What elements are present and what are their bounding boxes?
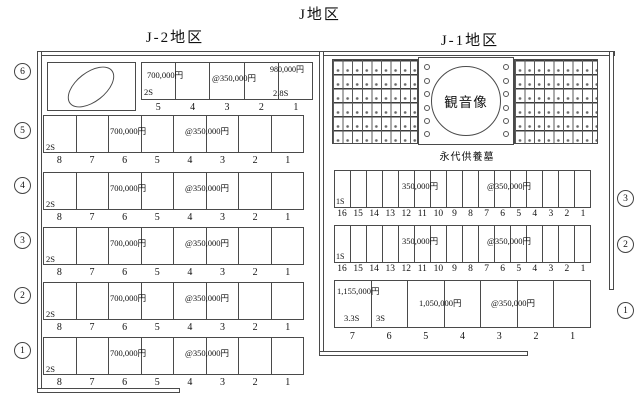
plot-cell — [446, 226, 462, 262]
cell-number: 2 — [239, 267, 272, 278]
plot-cell — [574, 226, 590, 262]
cell-number: 2 — [518, 331, 555, 342]
kannon-statue-circle: 観音像 — [431, 66, 501, 136]
cell-number: 8 — [43, 155, 76, 166]
cell-number: 1 — [271, 267, 304, 278]
plot-row: 700,000円 2S @350,000円 980,000円 2.8S — [141, 62, 313, 100]
cell-number: 7 — [479, 264, 495, 274]
cell-number: 7 — [76, 212, 109, 223]
row-badge-j1-1: 1 — [617, 302, 634, 319]
cell-number: 1 — [575, 209, 591, 219]
cell-number: 2 — [559, 264, 575, 274]
cell-number: 8 — [43, 322, 76, 333]
size-label: 2S — [46, 310, 55, 319]
cell-number: 6 — [108, 267, 141, 278]
plot-cell — [238, 338, 271, 374]
cell-number: 1 — [271, 377, 304, 388]
j2-row-2: 2S 700,000円 @350,000円 87654321 — [43, 282, 304, 333]
plot-cell — [350, 171, 366, 207]
plot-cell — [271, 228, 304, 264]
small-circle-icon — [424, 118, 430, 124]
plot-cell — [271, 338, 304, 374]
small-circle-icon — [424, 91, 430, 97]
size-label: 2.8S — [273, 89, 288, 98]
price-label: @350,000円 — [185, 127, 229, 136]
small-circle-icon — [424, 64, 430, 70]
j2-row-1: 2S 700,000円 @350,000円 87654321 — [43, 337, 304, 388]
size-label: 2S — [46, 365, 55, 374]
price-label: @350,000円 — [185, 349, 229, 358]
cell-number: 8 — [43, 212, 76, 223]
j2-row-3: 2S 700,000円 @350,000円 87654321 — [43, 227, 304, 278]
cell-number: 2 — [559, 209, 575, 219]
cell-number: 14 — [366, 264, 382, 274]
j1-row-2: 1S 350,000円 @350,000円 161514131211109876… — [334, 225, 591, 274]
plot-cell — [238, 173, 271, 209]
plot-row: 1,155,000円 3.3S 3S 1,050,000円 @350,000円 — [334, 280, 591, 328]
cell-number: 7 — [334, 331, 371, 342]
size-label: 2S — [144, 88, 153, 97]
cell-number: 5 — [141, 212, 174, 223]
columbarium-grid-left — [332, 59, 418, 144]
cell-number: 6 — [495, 209, 511, 219]
plot-cell — [446, 171, 462, 207]
size-label: 1S — [336, 198, 344, 206]
plot-cell — [558, 171, 574, 207]
j2-section-heading: J-2地区 — [100, 26, 250, 47]
cell-number: 13 — [382, 264, 398, 274]
j2-row-5: 2S 700,000円 @350,000円 87654321 — [43, 115, 304, 166]
price-label: @350,000円 — [185, 294, 229, 303]
j1-bottom-path — [319, 351, 528, 356]
cell-number: 6 — [108, 322, 141, 333]
small-circle-icon — [503, 78, 509, 84]
cell-number: 1 — [271, 212, 304, 223]
top-border-path — [37, 51, 615, 56]
cell-number: 5 — [141, 155, 174, 166]
cell-number: 5 — [141, 267, 174, 278]
memorial-grave-label: 永代供養墓 — [403, 148, 531, 163]
plot-cell — [574, 171, 590, 207]
cell-number: 9 — [446, 209, 462, 219]
cell-number: 4 — [527, 264, 543, 274]
cell-number: 16 — [334, 264, 350, 274]
cell-number: 11 — [414, 264, 430, 274]
row-badge-j1-3: 3 — [617, 190, 634, 207]
cell-number: 4 — [444, 331, 481, 342]
plot-cell — [271, 116, 304, 152]
price-label: @350,000円 — [487, 237, 531, 246]
price-label: 350,000円 — [402, 237, 438, 246]
cell-number: 5 — [511, 264, 527, 274]
price-label: @350,000円 — [212, 74, 256, 83]
cell-number: 5 — [407, 331, 444, 342]
cell-number: 3 — [206, 212, 239, 223]
row-badge-j2-6: 6 — [14, 63, 31, 80]
cell-number: 4 — [174, 377, 207, 388]
cell-number: 8 — [463, 209, 479, 219]
plot-row: 2S 700,000円 @350,000円 — [43, 337, 304, 375]
columbarium-grid-right — [514, 59, 598, 144]
small-circle-icon — [424, 105, 430, 111]
row-badge-j2-1: 1 — [14, 342, 31, 359]
plot-cell — [76, 283, 109, 319]
price-label: 700,000円 — [110, 349, 146, 358]
price-label: 700,000円 — [147, 71, 183, 80]
center-divider-path — [319, 51, 324, 356]
small-circle-icon — [503, 118, 509, 124]
plot-cell — [542, 171, 558, 207]
cell-number: 13 — [382, 209, 398, 219]
cell-number: 3 — [206, 155, 239, 166]
left-border-path — [37, 51, 42, 393]
bottom-left-path — [37, 388, 180, 393]
plot-cell — [76, 228, 109, 264]
size-label: 3S — [376, 314, 385, 323]
cell-number: 1 — [271, 155, 304, 166]
cell-number: 1 — [279, 102, 313, 113]
price-label: 700,000円 — [110, 294, 146, 303]
plot-cell — [382, 171, 398, 207]
price-label: @350,000円 — [185, 239, 229, 248]
cell-number: 5 — [141, 102, 175, 113]
price-label: 700,000円 — [110, 127, 146, 136]
row-badge-j1-2: 2 — [617, 236, 634, 253]
row-badge-j2-2: 2 — [14, 287, 31, 304]
plot-cell — [462, 226, 478, 262]
size-label: 2S — [46, 200, 55, 209]
right-border-path — [609, 51, 614, 290]
cell-number: 6 — [108, 377, 141, 388]
plot-cell — [175, 63, 209, 99]
small-circle-icon — [503, 105, 509, 111]
small-circle-icon — [503, 64, 509, 70]
monument-box — [47, 62, 136, 111]
cell-number: 7 — [479, 209, 495, 219]
price-label: 1,050,000円 — [419, 299, 462, 308]
cell-number: 4 — [174, 155, 207, 166]
plot-row: 2S 700,000円 @350,000円 — [43, 282, 304, 320]
small-circle-icon — [503, 91, 509, 97]
cell-number: 5 — [141, 322, 174, 333]
row-badge-j2-3: 3 — [14, 232, 31, 249]
cell-number: 15 — [350, 209, 366, 219]
j2-row-4: 2S 700,000円 @350,000円 87654321 — [43, 172, 304, 223]
plot-cell — [76, 338, 109, 374]
page-title: J地区 — [0, 3, 640, 24]
cell-number: 6 — [495, 264, 511, 274]
cemetery-map: J地区 J-2地区 J-1地区 6 5 4 3 2 1 3 2 1 700,00… — [0, 0, 640, 400]
cell-number: 12 — [398, 209, 414, 219]
cell-number: 8 — [43, 267, 76, 278]
plot-cell — [542, 226, 558, 262]
cell-number: 4 — [174, 212, 207, 223]
cell-number: 2 — [239, 322, 272, 333]
cell-number: 3 — [543, 264, 559, 274]
cell-number: 12 — [398, 264, 414, 274]
cell-number: 15 — [350, 264, 366, 274]
cell-number: 7 — [76, 322, 109, 333]
j2-row-6: 700,000円 2S @350,000円 980,000円 2.8S 5432… — [141, 62, 313, 113]
cell-number: 7 — [76, 267, 109, 278]
cell-number: 7 — [76, 377, 109, 388]
cell-number: 6 — [108, 212, 141, 223]
cell-number: 5 — [511, 209, 527, 219]
plot-cell — [558, 226, 574, 262]
cell-number: 6 — [371, 331, 408, 342]
cell-number: 8 — [463, 264, 479, 274]
row-badge-j2-5: 5 — [14, 122, 31, 139]
cell-number: 16 — [334, 209, 350, 219]
ellipse-symbol-icon — [60, 59, 121, 116]
size-label: 2S — [46, 255, 55, 264]
cell-number: 3 — [481, 331, 518, 342]
cell-number: 8 — [43, 377, 76, 388]
price-label: @350,000円 — [185, 184, 229, 193]
price-label: 700,000円 — [110, 239, 146, 248]
small-circle-icon — [424, 78, 430, 84]
cell-number: 14 — [366, 209, 382, 219]
price-label: 980,000円 — [270, 66, 304, 74]
cell-number: 2 — [244, 102, 278, 113]
price-label: 350,000円 — [402, 182, 438, 191]
cell-number: 11 — [414, 209, 430, 219]
cell-number: 1 — [271, 322, 304, 333]
plot-row: 2S 700,000円 @350,000円 — [43, 227, 304, 265]
cell-number: 3 — [206, 377, 239, 388]
cell-number: 2 — [239, 377, 272, 388]
plot-cell — [271, 173, 304, 209]
plot-cell — [366, 226, 382, 262]
cell-number: 10 — [430, 264, 446, 274]
cell-number: 3 — [210, 102, 244, 113]
small-circle-icon — [424, 131, 430, 137]
price-label: @350,000円 — [487, 182, 531, 191]
small-circle-icon — [503, 131, 509, 137]
cell-number: 7 — [76, 155, 109, 166]
plot-row: 1S 350,000円 @350,000円 — [334, 225, 591, 263]
cell-number: 4 — [174, 322, 207, 333]
statue-area: 観音像 — [418, 57, 514, 145]
plot-cell — [462, 171, 478, 207]
cell-number: 4 — [527, 209, 543, 219]
size-label: 2S — [46, 143, 55, 152]
plot-cell — [271, 283, 304, 319]
size-label: 1S — [336, 253, 344, 261]
plot-cell — [366, 171, 382, 207]
j1-section-heading: J-1地区 — [395, 29, 545, 50]
price-label: 700,000円 — [110, 184, 146, 193]
plot-cell — [238, 228, 271, 264]
cell-number: 9 — [446, 264, 462, 274]
size-label: 3.3S — [344, 314, 359, 323]
plot-row: 1S 350,000円 @350,000円 — [334, 170, 591, 208]
j1-row-1: 1,155,000円 3.3S 3S 1,050,000円 @350,000円 … — [334, 280, 591, 342]
cell-number: 6 — [108, 155, 141, 166]
plot-cell — [553, 281, 590, 327]
cell-number: 3 — [206, 322, 239, 333]
j1-row-3: 1S 350,000円 @350,000円 161514131211109876… — [334, 170, 591, 219]
price-label: @350,000円 — [491, 299, 535, 308]
cell-number: 10 — [430, 209, 446, 219]
cell-number: 1 — [554, 331, 591, 342]
cell-number: 3 — [206, 267, 239, 278]
plot-cell — [76, 173, 109, 209]
row-badge-j2-4: 4 — [14, 177, 31, 194]
price-label: 1,155,000円 — [337, 287, 380, 296]
plot-cell — [238, 283, 271, 319]
cell-number: 3 — [543, 209, 559, 219]
cell-number: 2 — [239, 212, 272, 223]
cell-number: 5 — [141, 377, 174, 388]
plot-cell — [76, 116, 109, 152]
plot-cell — [350, 226, 366, 262]
cell-number: 4 — [174, 267, 207, 278]
cell-number: 1 — [575, 264, 591, 274]
cell-number: 4 — [175, 102, 209, 113]
cell-number: 2 — [239, 155, 272, 166]
plot-cell — [238, 116, 271, 152]
plot-cell — [382, 226, 398, 262]
plot-row: 2S 700,000円 @350,000円 — [43, 172, 304, 210]
plot-row: 2S 700,000円 @350,000円 — [43, 115, 304, 153]
